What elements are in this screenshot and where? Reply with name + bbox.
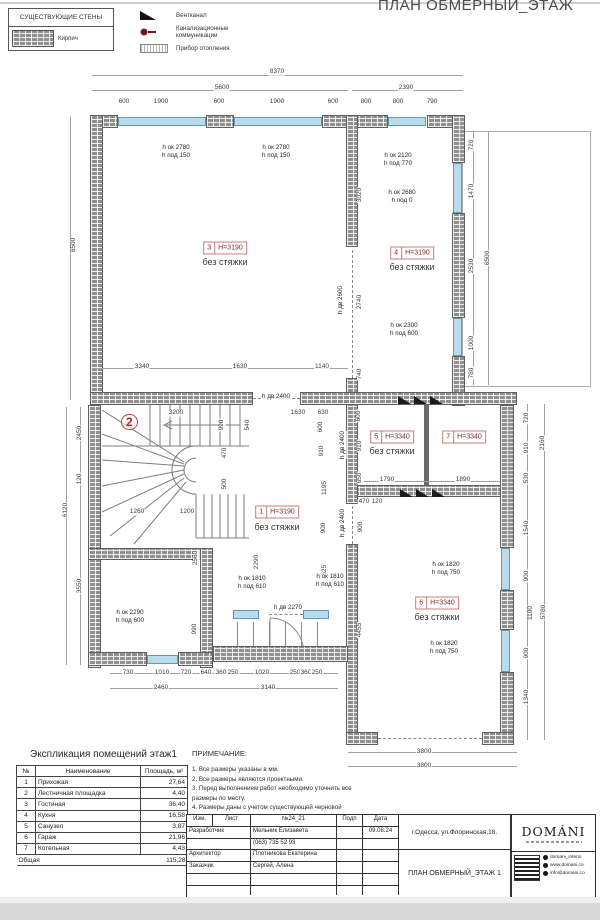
window [118,117,206,126]
schedule-cell: 5 [17,821,36,832]
room-note: без стяжки [390,262,435,272]
schedule-col-area: Площадь, м² [141,766,188,777]
opening-label: h дв 2400 [262,393,290,401]
room-note: без стяжки [203,257,248,267]
schedule-cell: 21,96 [141,832,188,843]
dimension-line [220,688,338,689]
room-height: H=3190 [215,243,246,254]
dimension-label: 1000 [469,335,476,351]
opening-dashed-line [352,250,353,378]
terrace-outline [462,131,591,387]
tb-empty-cell [187,874,251,886]
porch-step-line [317,622,318,646]
dimension-label: 900 [524,570,531,583]
brand-tagline [526,841,582,843]
room-label: 6H=3340 [415,597,459,610]
window [501,630,510,672]
opening-dashed-line [378,738,482,739]
room-number: 4 [391,248,402,259]
tb-role: Архитектор [187,850,251,862]
dimension-label: 900 [524,647,531,660]
email-icon [543,871,548,876]
vent-channel-mark [432,489,445,497]
dimension-label: 1140 [314,364,330,371]
dimension-label: 1790 [379,477,395,484]
dimension-label: 630 [317,410,330,417]
dimension-label: 3800 [416,749,432,756]
room-label: 5H=3340 [370,431,414,444]
dimension-label: 1100 [528,605,535,621]
wall-segment [90,115,103,405]
dimension-label: 120 [77,473,84,486]
brand-block: DOMÁNI domani_interio www.domani.co info… [511,815,595,897]
wall-segment [500,672,514,734]
wall-segment [90,392,253,405]
porch-step-line [237,622,238,646]
tb-role: Заказчик [187,862,251,874]
dimension-label: 600 [327,99,340,106]
dimension-label: 730 [122,670,135,677]
schedule-row: 1Прихожая27,64 [17,777,188,788]
dimension-label: 1890 [455,477,471,484]
dimension-label: 4455 [357,622,364,638]
dimension-label: 8370 [269,69,285,76]
window [147,655,178,664]
tb-empty-cell [337,886,363,895]
schedule-cell: Гостиная [36,799,141,810]
schedule-row: 5Санузел3,87 [17,821,188,832]
wall-segment [346,115,358,247]
note-item: 2. Все размеры являются проектными. [192,775,354,785]
dimension-line [66,407,67,665]
tb-value: Мельник Елизавета [251,827,337,839]
vent-channel-mark [430,396,443,404]
room-schedule-table: № Наименование Площадь, м² 1Прихожая27,6… [16,765,188,866]
opening-label: h дв 2400 [339,509,347,537]
tb-project-address: г.Одесса, ул.Флоринская,18. [399,815,511,850]
vent-channel-mark [398,396,411,404]
porch-step-line [269,622,270,646]
page-edge [0,903,600,920]
dimension-label: 530 [524,472,531,485]
dimension-label: 640 [200,670,213,677]
tb-podp-cell [337,839,363,850]
window [234,117,322,126]
dimension-label: 120 [371,499,384,506]
dimension-label: 250 [227,670,240,677]
tb-empty-cell [187,886,251,895]
opening-label: h ок 2680h под 0 [388,189,415,205]
schedule-row: 3Гостиная36,40 [17,799,188,810]
schedule-row: 7Котельная4,43 [17,843,188,854]
tb-date-cell [363,850,399,862]
room-number: 5 [371,432,382,443]
tb-role: Разработчик [187,827,251,839]
tb-empty-cell [251,874,337,886]
dimension-label: 720 [180,670,193,677]
room-height: H=3340 [427,598,458,609]
room-number: 1 [256,507,267,518]
tb-value: Сергей, Алена [251,862,337,874]
opening-label: h ок 2300h под 600 [390,322,418,338]
wall-segment [346,544,358,734]
wall-segment [500,590,514,630]
tb-podp-cell [337,827,363,839]
dimension-label: 600 [356,410,363,423]
tb-empty-cell [363,886,399,895]
note-item: 1. Все размеры указаны в мм. [192,765,354,775]
schedule-cell: 4 [17,810,36,821]
schedule-row: 4Кухня16,58 [17,810,188,821]
wall-segment [213,646,348,662]
window [388,117,426,126]
room-height: H=3340 [382,432,413,443]
opening-label: h ок 2290h под 600 [116,609,144,625]
dimension-label: 910 [357,440,364,453]
dimension-label: 470 [222,447,229,460]
dimension-line [80,407,81,665]
dimension-label: 3800 [416,763,432,770]
tb-empty-cell [337,874,363,886]
dimension-label: 500 [222,478,229,491]
schedule-title: Экспликация помещений этаж1 [30,749,177,760]
schedule-total-value: 115,28 [141,855,188,866]
dimension-label: 1010 [154,670,170,677]
title-block: Изм. Лист №24_21 Подп Дата Разработчик М… [186,814,596,898]
dimension-label: 1200 [179,509,195,516]
schedule-cell: 36,40 [141,799,188,810]
window [453,318,462,356]
opening-label: h дв 2270 [274,604,302,612]
tb-date-cell [363,839,399,850]
schedule-cell: Котельная [36,843,141,854]
dimension-label: 2740 [357,294,364,310]
dimension-label: 1630 [290,410,306,417]
dimension-label: 1020 [254,670,270,677]
schedule-cell: Кухня [36,810,141,821]
tb-value: Плотникова Екатерина [251,850,337,862]
dimension-label: 3020 [357,187,364,203]
schedule-col-num: № [17,766,36,777]
opening-label: h ок 1810h под 610 [316,573,344,589]
room-label: 4H=3190 [390,247,434,260]
tb-doc-number: №24_21 [251,815,337,827]
schedule-cell: Санузел [36,821,141,832]
schedule-cell: 27,64 [141,777,188,788]
opening-label: h дв 2400 [339,431,347,459]
schedule-total-label: Общая [17,855,141,866]
dimension-line [348,766,517,767]
window [453,163,462,213]
dimension-label: 2290 [254,554,261,570]
window [501,548,510,590]
tb-podp-cell [337,850,363,862]
opening-label: h ок 2780h под 150 [262,144,290,160]
dimension-label: 990 [219,419,226,432]
schedule-cell: 4,43 [141,843,188,854]
room-height: H=3340 [454,432,485,443]
dimension-label: 3200 [168,410,184,417]
schedule-cell: 4,40 [141,788,188,799]
dimension-label: 2530 [469,258,476,274]
dimension-label: 3140 [260,685,276,692]
dimension-label: 6500 [485,250,492,266]
porch-step-line [253,622,254,646]
wall-segment [88,652,147,666]
tb-col-date: Дата [363,815,399,827]
tb-empty-cell [251,886,337,895]
instagram-icon [543,855,548,860]
dimension-line [348,752,517,753]
dimension-label: 2460 [153,685,169,692]
dimension-label: 6500 [71,237,78,253]
opening-dashed-line [352,506,353,544]
wall-segment [88,405,101,668]
room-note: без стяжки [415,612,460,622]
tb-role [187,839,251,850]
dimension-label: 1260 [129,509,145,516]
dimension-label: 2560 [193,550,200,566]
window [303,610,329,619]
tb-empty-cell [363,874,399,886]
dimension-label: 540 [245,419,252,432]
website-icon [543,863,548,868]
dimension-label: 1540 [524,520,531,536]
vent-channel-mark [416,489,429,497]
room-height: H=3190 [267,507,298,518]
dimension-label: 2390 [398,85,414,92]
dimension-label: 360 [215,670,228,677]
schedule-cell: 6 [17,832,36,843]
room-number: 6 [416,598,427,609]
schedule-row: 6Гараж21,96 [17,832,188,843]
tb-date-value: 09.08.24 [363,827,399,839]
brand-contact: www.domani.co [550,863,584,868]
dimension-label: 910 [524,442,531,455]
dimension-label: 600 [318,421,325,434]
dimension-line [70,117,71,400]
notes-title: ПРИМЕЧАНИЕ: [192,749,354,758]
schedule-col-name: Наименование [36,766,141,777]
schedule-cell: 3 [17,799,36,810]
dimension-label: 2160 [540,435,547,451]
stair-number-mark: 2 [121,414,138,430]
dimension-label: 6120 [63,502,70,518]
vent-channel-mark [414,396,427,404]
brand-contact: info@domani.co [550,871,585,876]
porch-step-line [301,622,302,646]
room-number: 7 [443,432,454,443]
opening-label: h ок 2780h под 150 [162,144,190,160]
dimension-label: 780 [469,367,476,380]
dimension-label: 5780 [541,604,548,620]
room-label: 7H=3340 [442,431,486,444]
dimension-line [355,481,500,482]
dimension-label: 990 [192,623,199,636]
vent-channel-mark [400,489,413,497]
room-note: без стяжки [255,522,300,532]
dimension-label: 1340 [524,689,531,705]
schedule-cell: 7 [17,843,36,854]
tb-sheet-title: ПЛАН ОБМЕРНЫЙ_ЭТАЖ 1 [399,850,511,897]
tb-podp-cell [337,862,363,874]
dimension-label: 800 [392,99,405,106]
dimension-label: 250 [311,670,324,677]
dimension-label: 3340 [134,364,150,371]
schedule-row: 2Лестничная площадка4,40 [17,788,188,799]
room-note: без стяжки [370,446,415,456]
schedule-cell: Лестничная площадка [36,788,141,799]
opening-dashed-line [269,614,303,615]
window [233,610,259,619]
schedule-cell: Прихожая [36,777,141,788]
dimension-label: 2450 [77,425,84,441]
notes-block: ПРИМЕЧАНИЕ: 1. Все размеры указаны в мм.… [192,749,354,823]
opening-label: h ок 1810h под 610 [238,575,266,591]
opening-label: h ок 1820h под 750 [430,640,458,656]
dimension-label: 910 [319,445,326,458]
dimension-label: 900 [321,522,328,535]
tb-col-podp: Подп [337,815,363,827]
schedule-cell: 3,87 [141,821,188,832]
brand-logo: DOMÁNI [522,824,586,839]
dimension-label: 600 [118,99,131,106]
tb-date-cell [363,862,399,874]
tb-col-izm: Изм. [187,815,213,827]
dimension-label: 1195 [322,480,329,496]
dimension-line [92,368,348,369]
porch-step-line [285,622,286,646]
dimension-label: 470 [358,499,371,506]
brand-contact: domani_interio [550,855,581,860]
opening-label: h дв 2600 [337,286,345,314]
dimension-label: 1630 [232,364,248,371]
dimension-label: 1900 [269,99,285,106]
wall-segment [178,652,213,666]
wall-segment [452,115,465,163]
dimension-label: 900 [358,521,365,534]
schedule-cell: 1 [17,777,36,788]
note-item: 3. Перед выполнением работ необходимо ут… [192,784,354,803]
wall-segment [346,485,514,497]
opening-label: h ок 2120h под 770 [384,152,412,168]
wall-segment [500,405,514,548]
dimension-label: 1900 [153,99,169,106]
wall-segment [206,115,234,128]
dimension-label: 800 [360,99,373,106]
dimension-label: 790 [426,99,439,106]
schedule-cell: Гараж [36,832,141,843]
dimension-label: 720 [524,412,531,425]
drawing-sheet: ПЛАН ОБМЕРНЫЙ_ЭТАЖ СУЩЕСТВУЮЩИЕ СТЕНЫ Ки… [0,0,600,920]
schedule-cell: 2 [17,788,36,799]
room-number: 3 [204,243,215,254]
room-label: 1H=3190 [255,506,299,519]
wall-segment [200,548,213,668]
wall-partition [424,405,429,485]
opening-label: h ок 1820h под 750 [432,561,460,577]
wall-segment [452,213,465,318]
wall-segment [482,732,514,745]
schedule-cell: 16,58 [141,810,188,821]
room-height: H=3190 [402,248,433,259]
dimension-label: 720 [469,139,476,152]
dimension-label: 600 [213,99,226,106]
tb-value: (063) 735 52 93 [251,839,337,850]
wall-segment [346,732,378,745]
dimension-label: 1470 [469,183,476,199]
dimension-label: 650 [357,472,364,485]
room-label: 3H=3190 [203,242,247,255]
dimension-label: 3550 [77,578,84,594]
dimension-label: 740 [357,368,364,381]
qr-code [514,855,540,881]
dimension-line [544,404,545,740]
dimension-label: 5600 [214,85,230,92]
tb-col-list: Лист [213,815,251,827]
